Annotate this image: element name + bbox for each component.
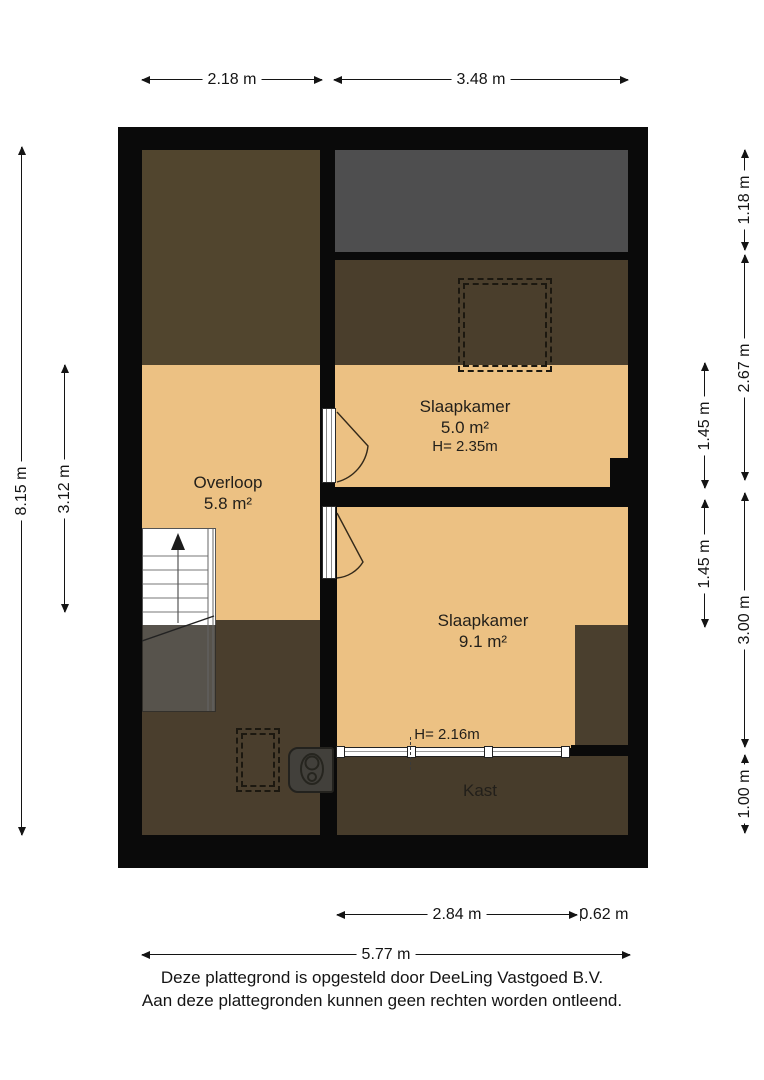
room-label-kast: Kast — [463, 780, 497, 801]
dimension-vertical: 8.15 m — [17, 147, 27, 835]
dimension-label: 2.67 m — [736, 338, 754, 397]
dim-arrow-right-icon — [569, 911, 578, 919]
room-label-line: H= 2.16m — [414, 726, 479, 745]
dim-arrow-left-icon — [141, 951, 150, 959]
dim-arrow-right-icon — [620, 76, 629, 84]
dimension-tick — [580, 909, 581, 921]
dimension-label: 8.15 m — [13, 462, 31, 521]
room-label-overloop: Overloop5.8 m² — [194, 472, 263, 514]
dimension-label: 2.84 m — [428, 906, 487, 924]
footer-line-1: Deze plattegrond is opgesteld door DeeLi… — [0, 966, 764, 989]
dimension-vertical: 1.45 m — [700, 500, 710, 627]
dimension-label: 5.77 m — [357, 946, 416, 964]
dimension-tick — [410, 737, 411, 770]
dim-arrow-down-icon — [61, 604, 69, 613]
dimension-vertical: 2.67 m — [740, 255, 750, 480]
dim-arrow-up-icon — [701, 362, 709, 371]
dimension-vertical: 1.18 m — [740, 150, 750, 250]
dimension-label: 1.45 m — [696, 534, 714, 593]
dimension-horizontal: 2.18 m — [142, 75, 322, 85]
dim-arrow-up-icon — [741, 254, 749, 263]
room-label-line: 9.1 m² — [438, 631, 529, 652]
dim-arrow-down-icon — [701, 619, 709, 628]
dim-arrow-right-icon — [622, 951, 631, 959]
dimension-label: 1.18 m — [736, 171, 754, 230]
dimension-vertical: 1.00 m — [740, 755, 750, 833]
room-label-line: H= 2.35m — [420, 438, 511, 457]
room-label-slaapkamer-5: Slaapkamer5.0 m²H= 2.35m — [420, 396, 511, 457]
dim-arrow-down-icon — [741, 472, 749, 481]
dim-arrow-right-icon — [314, 76, 323, 84]
dim-arrow-up-icon — [741, 492, 749, 501]
dim-arrow-up-icon — [741, 754, 749, 763]
room-label-slaapkamer-9: Slaapkamer9.1 m² — [438, 610, 529, 652]
dimension-vertical: 1.45 m — [700, 363, 710, 488]
dimension-label: 3.12 m — [56, 459, 74, 518]
dimension-label: 1.45 m — [696, 396, 714, 455]
room-label-line: Overloop — [194, 472, 263, 493]
room-label-line: Kast — [463, 780, 497, 801]
dimension-label: 1.00 m — [736, 765, 754, 824]
dim-arrow-up-icon — [61, 364, 69, 373]
dim-arrow-up-icon — [741, 149, 749, 158]
dim-arrow-left-icon — [336, 911, 345, 919]
height-label-slaapkamer-9: H= 2.16m — [414, 726, 479, 745]
dim-arrow-down-icon — [701, 480, 709, 489]
footer-line-2: Aan deze plattegronden kunnen geen recht… — [0, 989, 764, 1012]
dim-arrow-down-icon — [741, 739, 749, 748]
dim-arrow-down-icon — [741, 242, 749, 251]
room-label-line: Slaapkamer — [420, 396, 511, 417]
dim-arrow-left-icon — [333, 76, 342, 84]
floorplan-page: 2.18 m3.48 m2.84 m5.77 m8.15 m3.12 m1.45… — [0, 0, 764, 1080]
dim-arrow-down-icon — [18, 827, 26, 836]
footer-disclaimer: Deze plattegrond is opgesteld door DeeLi… — [0, 966, 764, 1012]
dimension-label: 2.18 m — [203, 71, 262, 89]
dimension-label: 3.48 m — [452, 71, 511, 89]
dimension-horizontal: 3.48 m — [334, 75, 628, 85]
dimension-label-free: 0.62 m — [580, 906, 629, 924]
dimension-horizontal: 5.77 m — [142, 950, 630, 960]
dim-arrow-left-icon — [141, 76, 150, 84]
dimension-vertical: 3.12 m — [60, 365, 70, 612]
dimension-vertical: 3.00 m — [740, 493, 750, 747]
dimension-label: 3.00 m — [736, 591, 754, 650]
room-label-line: Slaapkamer — [438, 610, 529, 631]
annotations-layer: 2.18 m3.48 m2.84 m5.77 m8.15 m3.12 m1.45… — [0, 0, 764, 1080]
dim-arrow-up-icon — [18, 146, 26, 155]
dim-arrow-up-icon — [701, 499, 709, 508]
dimension-horizontal: 2.84 m — [337, 910, 577, 920]
room-label-line: 5.0 m² — [420, 417, 511, 438]
dim-arrow-down-icon — [741, 825, 749, 834]
room-label-line: 5.8 m² — [194, 493, 263, 514]
